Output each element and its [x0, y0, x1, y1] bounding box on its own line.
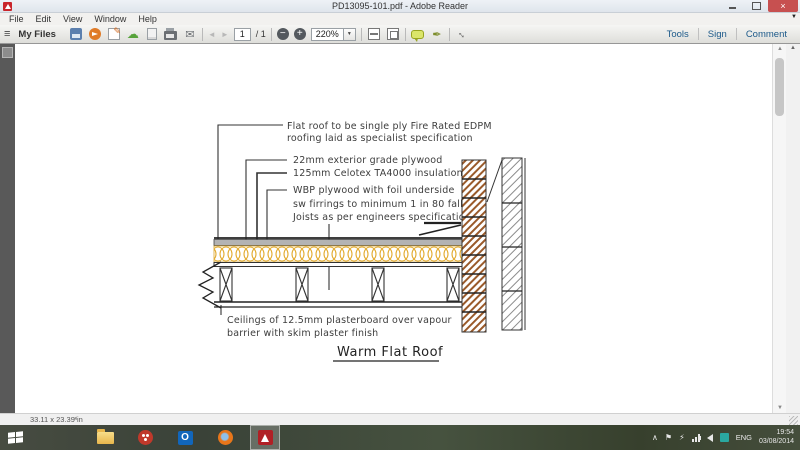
window-right-edge [786, 44, 800, 413]
menubar-overflow-icon[interactable]: ▼ [791, 14, 797, 20]
clock-time: 19:54 [759, 429, 794, 438]
break-symbol [199, 262, 221, 308]
block-wall [502, 158, 525, 330]
toolbar-separator [405, 28, 406, 41]
toolbar-collapse-icon[interactable]: ▲ [790, 45, 796, 51]
next-page-icon[interactable]: ► [221, 30, 229, 39]
menu-bar: File Edit View Window Help ▼ [0, 13, 800, 25]
sign-button[interactable]: Sign [699, 29, 736, 40]
annotation-flat-roof-line2: roofing laid as specialist specification [287, 133, 473, 144]
document-area: Flat roof to be single ply Fire Rated ED… [0, 44, 800, 413]
fullscreen-expand-icon[interactable]: ↔ [452, 24, 471, 43]
cavity-line [487, 160, 502, 202]
screen: PD13095-101.pdf - Adobe Reader × File Ed… [0, 0, 800, 450]
taskbar-firefox[interactable] [210, 425, 240, 450]
hscroll-left-icon[interactable]: ◄ [72, 416, 78, 422]
adobe-reader-icon [258, 430, 273, 445]
minimize-button[interactable] [720, 0, 744, 12]
menu-edit[interactable]: Edit [31, 13, 57, 25]
pdf-page: Flat roof to be single ply Fire Rated ED… [15, 44, 772, 413]
start-button[interactable] [0, 425, 30, 450]
close-button[interactable]: × [768, 0, 798, 12]
outlook-icon: O [178, 431, 193, 445]
power-icon[interactable]: ⚡ [679, 433, 685, 442]
email-icon[interactable]: ✉ [183, 28, 197, 41]
toolbar-separator [361, 28, 362, 41]
annotation-ceiling-line1: Ceilings of 12.5mm plasterboard over vap… [227, 315, 452, 326]
annotation-plywood: 22mm exterior grade plywood [293, 155, 443, 166]
roof-build-up [214, 223, 462, 307]
taskbar-file-explorer[interactable] [90, 425, 120, 450]
toolbar-separator [449, 28, 450, 41]
hamburger-icon[interactable]: ≡ [4, 28, 10, 40]
zoom-in-button[interactable]: + [294, 28, 306, 40]
toolbar-separator [202, 28, 203, 41]
resize-grip-icon[interactable] [789, 416, 798, 425]
comment-bubble-icon[interactable] [411, 30, 424, 39]
zoom-out-button[interactable]: − [277, 28, 289, 40]
zoom-level-value[interactable]: 220% [311, 28, 344, 41]
input-indicator-icon[interactable] [720, 433, 729, 442]
title-bar: PD13095-101.pdf - Adobe Reader × [0, 0, 800, 13]
clock[interactable]: 19:54 03/08/2014 [759, 429, 794, 447]
toolbar: ≡ My Files ☁ ✉ ◄ ► / 1 − + 220% ▼ [0, 25, 800, 44]
annotation-flat-roof-line1: Flat roof to be single ply Fire Rated ED… [287, 121, 492, 132]
taskbar: O ∧ ⚑ ⚡ ENG 19:54 03/08/2014 [0, 425, 800, 450]
menu-window[interactable]: Window [89, 13, 131, 25]
annotation-joists: Joists as per engineers specification [292, 212, 471, 223]
scrollbar-thumb[interactable] [775, 58, 784, 116]
zoom-dropdown-caret-icon[interactable]: ▼ [344, 28, 356, 41]
send-icon[interactable] [89, 28, 101, 40]
page-thumbnails-icon[interactable] [2, 47, 13, 58]
volume-icon[interactable] [707, 434, 713, 442]
previous-page-icon[interactable]: ◄ [208, 30, 216, 39]
annotation-insulation: 125mm Celotex TA4000 insulation [293, 168, 463, 179]
windows-logo-icon [8, 431, 23, 445]
vertical-scrollbar[interactable]: ▲ ▼ [772, 44, 786, 413]
page-total-label: / 1 [256, 29, 266, 39]
scroll-down-icon[interactable]: ▼ [773, 405, 787, 411]
drawing-title: Warm Flat Roof [337, 345, 443, 360]
fit-page-icon[interactable] [387, 28, 399, 40]
warm-flat-roof-drawing: Flat roof to be single ply Fire Rated ED… [15, 44, 772, 413]
annotation-firrings: sw firrings to minimum 1 in 80 fall [293, 199, 463, 210]
taskbar-red-app[interactable] [130, 425, 160, 450]
red-app-icon [138, 430, 153, 445]
action-center-flag-icon[interactable]: ⚑ [665, 433, 672, 442]
taskbar-adobe-reader-active[interactable] [250, 425, 280, 450]
status-bar: 33.11 x 23.39 in ◄ [0, 413, 800, 425]
clock-date: 03/08/2014 [759, 438, 794, 447]
taskbar-outlook[interactable]: O [170, 425, 200, 450]
scroll-up-icon[interactable]: ▲ [773, 46, 787, 52]
tools-button[interactable]: Tools [658, 29, 698, 40]
file-icon[interactable] [147, 28, 157, 40]
menu-view[interactable]: View [58, 13, 87, 25]
hidden-icons-chevron-icon[interactable]: ∧ [652, 433, 658, 442]
system-tray: ∧ ⚑ ⚡ ENG 19:54 03/08/2014 [652, 429, 800, 447]
comment-button[interactable]: Comment [737, 29, 796, 40]
save-icon[interactable] [70, 28, 82, 40]
folder-icon [97, 432, 114, 444]
sign-pen-icon[interactable]: ✒ [430, 28, 444, 41]
my-files-button[interactable]: My Files [18, 29, 56, 40]
menu-file[interactable]: File [4, 13, 29, 25]
annotation-wbp: WBP plywood with foil underside [293, 185, 455, 196]
menu-help[interactable]: Help [133, 13, 162, 25]
toolbar-separator [271, 28, 272, 41]
firefox-icon [218, 430, 233, 445]
cloud-upload-icon[interactable]: ☁ [126, 28, 140, 41]
navigation-pane [0, 44, 15, 413]
window-title: PD13095-101.pdf - Adobe Reader [0, 0, 800, 12]
page-number-input[interactable] [234, 28, 251, 41]
annotation-ceiling-line2: barrier with skim plaster finish [227, 328, 378, 339]
language-indicator[interactable]: ENG [736, 433, 752, 442]
print-icon[interactable] [164, 31, 177, 40]
brick-wall [462, 160, 486, 332]
joists [220, 268, 459, 301]
edit-icon[interactable] [108, 28, 120, 40]
fit-width-icon[interactable] [368, 28, 380, 40]
maximize-button[interactable] [744, 0, 768, 12]
window-controls: × [720, 0, 798, 12]
